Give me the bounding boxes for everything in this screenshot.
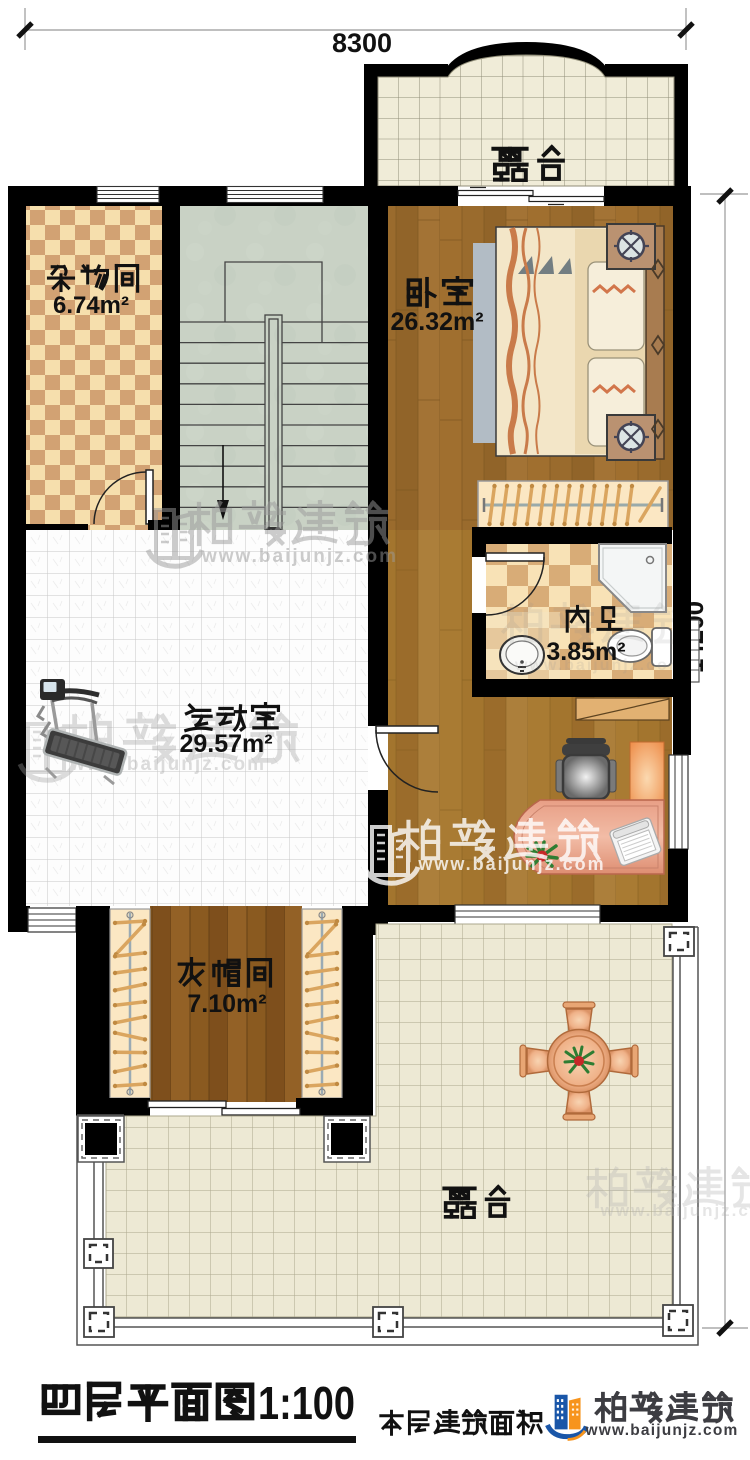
svg-text:www.baijunjz.com: www.baijunjz.com <box>600 1201 750 1220</box>
svg-text:29.57m²: 29.57m² <box>179 730 272 758</box>
svg-text:8300: 8300 <box>332 28 392 58</box>
svg-text:www.baijunjz.com: www.baijunjz.com <box>585 1422 739 1439</box>
svg-text:www.baijunjz.com: www.baijunjz.com <box>201 546 398 567</box>
svg-text:26.32m²: 26.32m² <box>390 308 483 336</box>
svg-text:www.baijunjz.com: www.baijunjz.com <box>417 854 605 874</box>
svg-text:1:100: 1:100 <box>258 1377 355 1429</box>
svg-text:3.85m²: 3.85m² <box>546 638 625 666</box>
svg-text:7.10m²: 7.10m² <box>187 990 266 1018</box>
svg-text:6.74m²: 6.74m² <box>53 292 129 319</box>
